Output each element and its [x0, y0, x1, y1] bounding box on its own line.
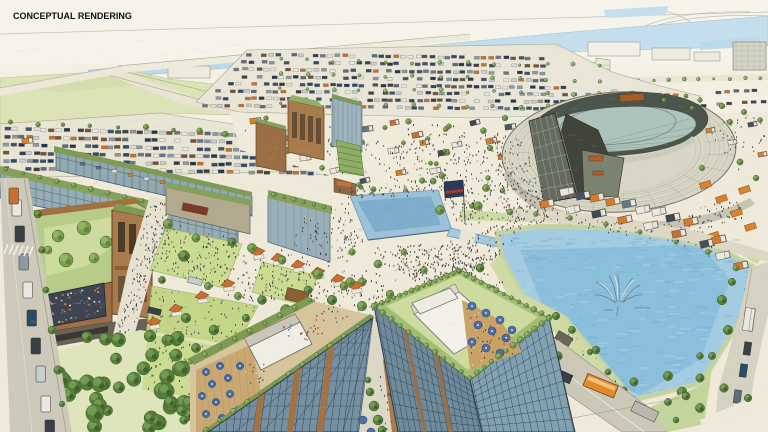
svg-text:CONCEPTUAL RENDERING: CONCEPTUAL RENDERING — [13, 11, 132, 21]
